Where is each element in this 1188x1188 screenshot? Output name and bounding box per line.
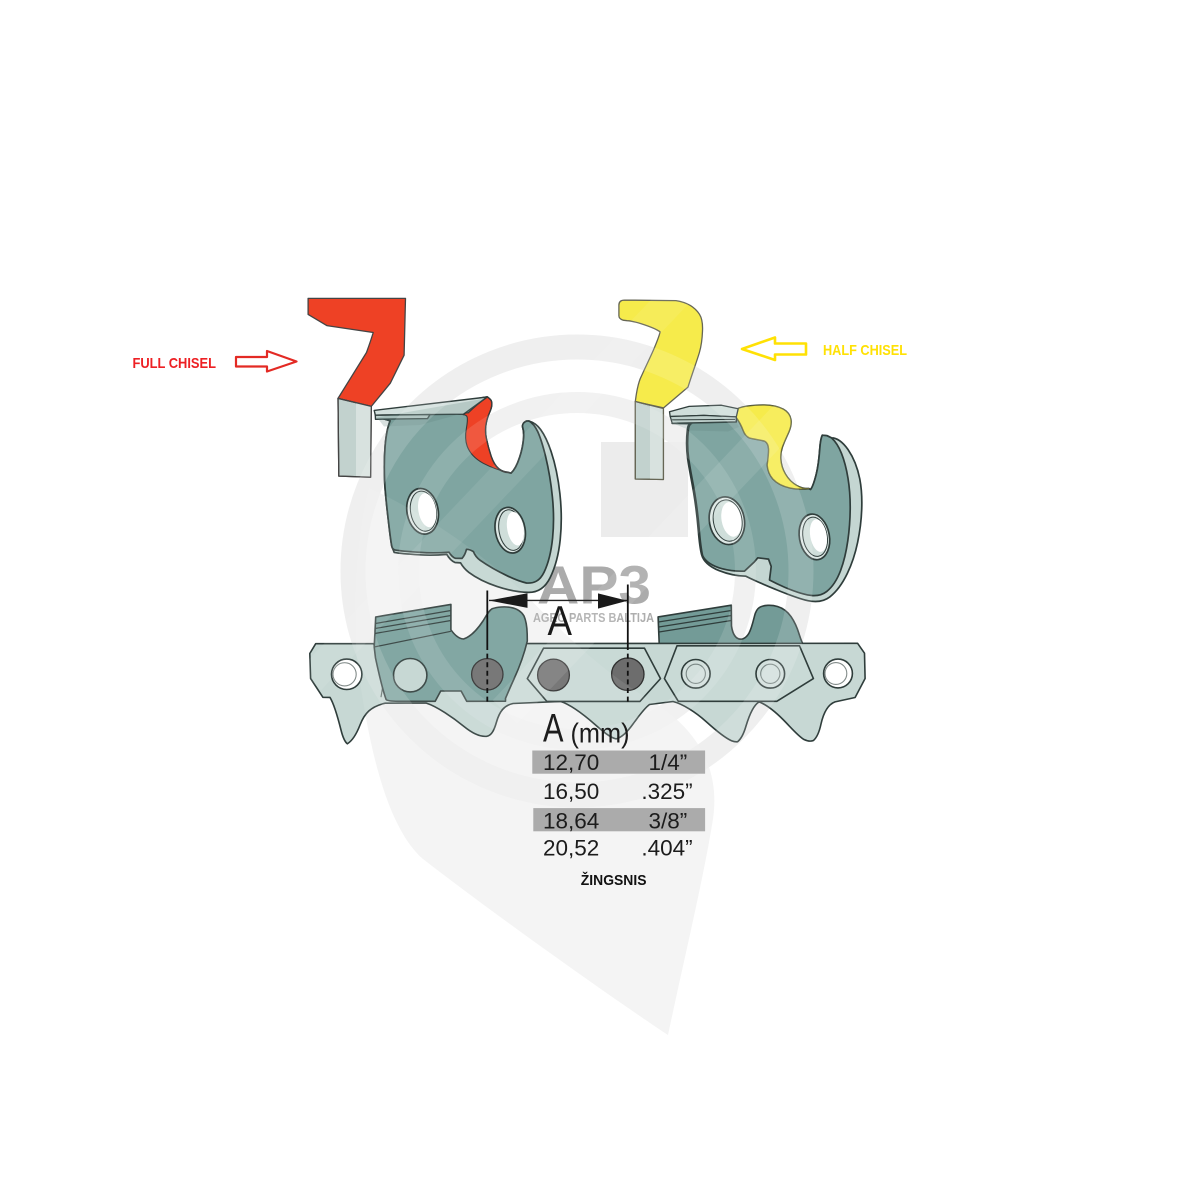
svg-text:FULL CHISEL: FULL CHISEL [133, 355, 217, 372]
svg-text:.325”: .325” [641, 779, 692, 804]
svg-text:20,52: 20,52 [543, 836, 599, 861]
svg-text:12,70: 12,70 [543, 750, 599, 775]
svg-text:1/4”: 1/4” [649, 750, 688, 775]
svg-text:.404”: .404” [641, 836, 692, 861]
svg-text:18,64: 18,64 [543, 808, 599, 833]
svg-text:3/8”: 3/8” [649, 808, 688, 833]
svg-text:HALF CHISEL: HALF CHISEL [823, 342, 907, 359]
svg-text:A: A [543, 707, 564, 751]
svg-text:A: A [548, 597, 573, 644]
svg-text:ŽINGSNIS: ŽINGSNIS [581, 871, 647, 889]
svg-text:(mm): (mm) [571, 718, 630, 749]
svg-text:16,50: 16,50 [543, 779, 599, 804]
